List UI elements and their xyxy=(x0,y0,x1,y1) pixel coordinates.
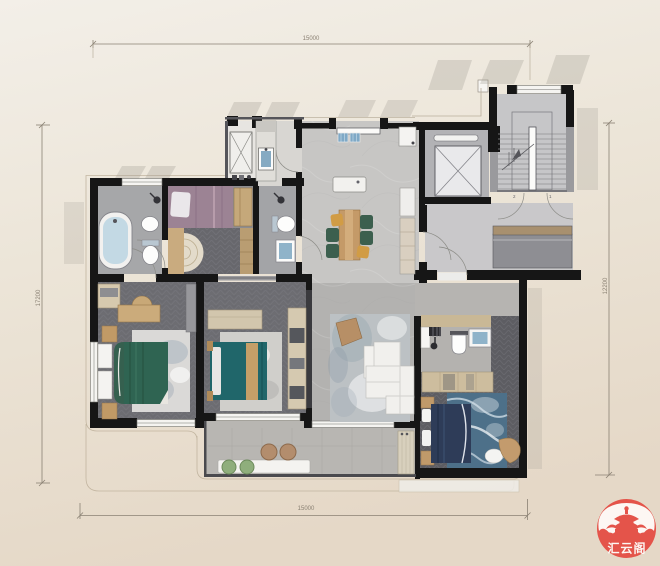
svg-text:汇云阁: 汇云阁 xyxy=(607,541,646,556)
svg-text:15000: 15000 xyxy=(303,36,320,42)
svg-text:12200: 12200 xyxy=(603,277,609,294)
svg-text:15000: 15000 xyxy=(298,506,315,512)
svg-text:17200: 17200 xyxy=(36,289,42,306)
